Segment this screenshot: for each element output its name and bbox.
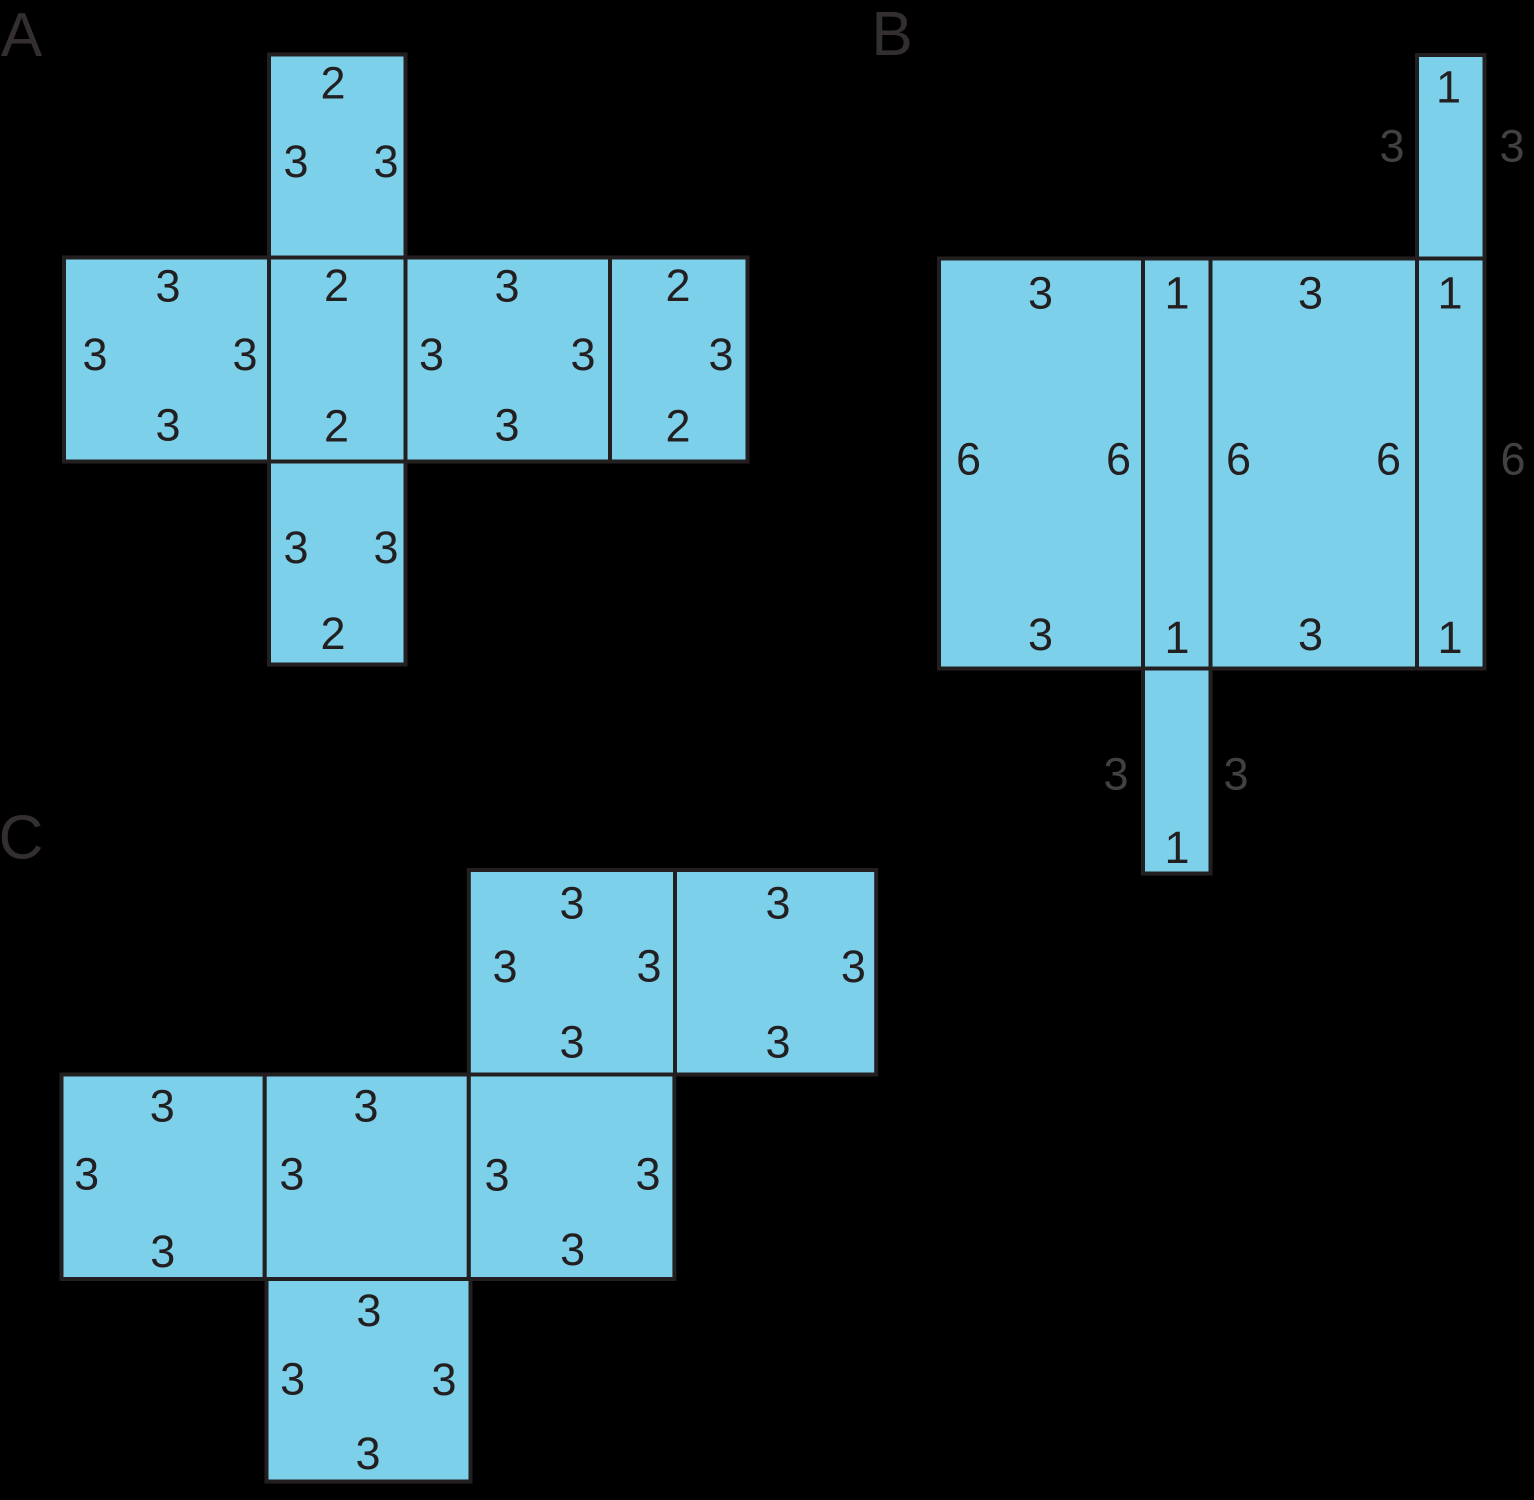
svg-text:2: 2 <box>665 401 690 452</box>
svg-text:3: 3 <box>1379 121 1404 172</box>
svg-text:3: 3 <box>1103 749 1128 800</box>
svg-text:3: 3 <box>283 522 308 573</box>
svg-text:3: 3 <box>353 1081 378 1132</box>
svg-text:6: 6 <box>956 434 981 485</box>
svg-text:3: 3 <box>232 329 257 380</box>
svg-text:2: 2 <box>320 58 345 109</box>
svg-text:3: 3 <box>636 941 661 992</box>
svg-text:3: 3 <box>494 400 519 451</box>
svg-text:3: 3 <box>283 136 308 187</box>
svg-text:B: B <box>871 0 912 69</box>
svg-text:3: 3 <box>1298 268 1323 319</box>
svg-text:3: 3 <box>1298 609 1323 660</box>
svg-text:3: 3 <box>1499 121 1524 172</box>
svg-text:6: 6 <box>1226 434 1251 485</box>
svg-text:1: 1 <box>1164 268 1189 319</box>
svg-text:3: 3 <box>355 1428 380 1479</box>
svg-text:2: 2 <box>665 260 690 311</box>
svg-text:A: A <box>1 1 43 70</box>
svg-text:3: 3 <box>155 261 180 312</box>
svg-text:3: 3 <box>82 329 107 380</box>
svg-text:3: 3 <box>559 1017 584 1068</box>
svg-text:1: 1 <box>1437 268 1462 319</box>
svg-text:3: 3 <box>708 329 733 380</box>
svg-text:3: 3 <box>765 878 790 929</box>
svg-text:3: 3 <box>373 136 398 187</box>
svg-text:3: 3 <box>765 1017 790 1068</box>
svg-text:3: 3 <box>559 878 584 929</box>
svg-text:3: 3 <box>570 329 595 380</box>
svg-text:3: 3 <box>373 522 398 573</box>
svg-text:3: 3 <box>560 1224 585 1275</box>
svg-text:3: 3 <box>492 941 517 992</box>
svg-text:3: 3 <box>155 400 180 451</box>
svg-text:1: 1 <box>1437 612 1462 663</box>
svg-text:3: 3 <box>484 1150 509 1201</box>
svg-text:3: 3 <box>74 1149 99 1200</box>
svg-text:1: 1 <box>1164 612 1189 663</box>
svg-text:6: 6 <box>1500 434 1525 485</box>
svg-text:3: 3 <box>1028 609 1053 660</box>
svg-text:6: 6 <box>1106 434 1131 485</box>
svg-text:1: 1 <box>1436 62 1461 113</box>
svg-text:3: 3 <box>150 1081 175 1132</box>
svg-text:3: 3 <box>431 1354 456 1405</box>
svg-text:3: 3 <box>280 1353 305 1404</box>
svg-text:3: 3 <box>635 1149 660 1200</box>
svg-text:3: 3 <box>841 941 866 992</box>
svg-text:3: 3 <box>494 261 519 312</box>
svg-text:2: 2 <box>320 608 345 659</box>
svg-text:3: 3 <box>150 1226 175 1277</box>
svg-text:6: 6 <box>1376 434 1401 485</box>
svg-text:3: 3 <box>1028 268 1053 319</box>
svg-text:3: 3 <box>356 1285 381 1336</box>
svg-text:3: 3 <box>419 329 444 380</box>
svg-text:2: 2 <box>324 260 349 311</box>
svg-text:3: 3 <box>1223 749 1248 800</box>
svg-text:C: C <box>0 804 43 873</box>
svg-text:3: 3 <box>279 1149 304 1200</box>
svg-text:1: 1 <box>1164 822 1189 873</box>
svg-text:2: 2 <box>324 401 349 452</box>
